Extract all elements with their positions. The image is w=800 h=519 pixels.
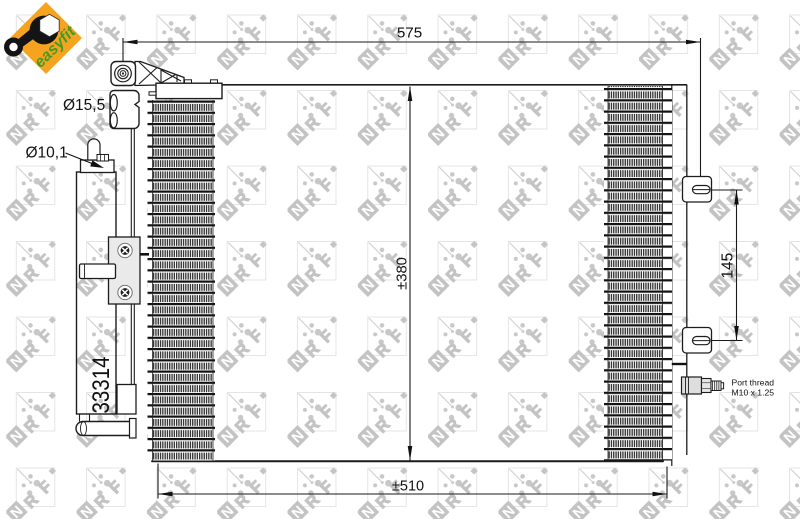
svg-text:145: 145 xyxy=(720,253,737,279)
svg-text:±380: ±380 xyxy=(395,257,411,290)
svg-text:Ø10,1: Ø10,1 xyxy=(26,145,68,162)
svg-text:Port thread: Port thread xyxy=(732,378,775,388)
svg-text:575: 575 xyxy=(397,25,422,42)
svg-text:33314: 33314 xyxy=(88,357,115,414)
svg-text:Ø15,5: Ø15,5 xyxy=(63,97,105,114)
svg-text:±510: ±510 xyxy=(392,479,424,495)
svg-text:M10 x 1.25: M10 x 1.25 xyxy=(732,388,775,398)
